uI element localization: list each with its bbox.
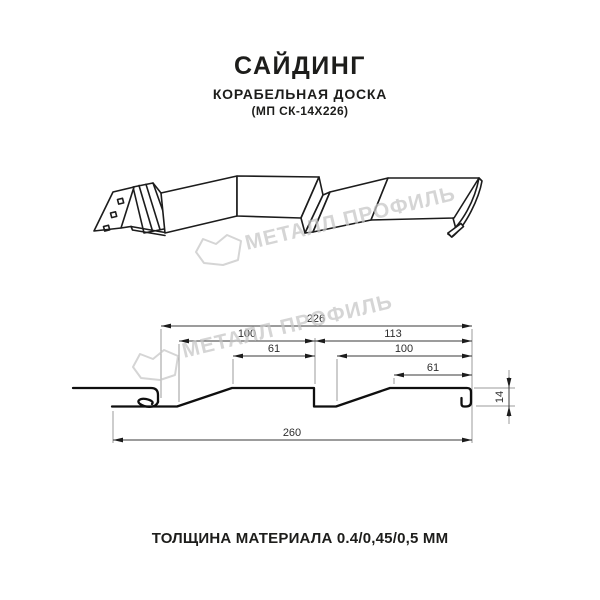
dim-profile-height: 14 xyxy=(494,391,506,403)
metal-profil-logo-icon xyxy=(133,350,178,380)
thickness-note: ТОЛЩИНА МАТЕРИАЛА 0.4/0,45/0,5 ММ xyxy=(0,530,600,547)
cross-section-drawing xyxy=(73,388,471,407)
dim-total-width: 260 xyxy=(283,427,301,439)
watermark-lower: МЕТАЛЛ ПРОФИЛЬ xyxy=(133,290,395,380)
technical-drawing-canvas: 226 100 113 61 100 61 260 14 МЕТАЛЛ ПРОФ… xyxy=(0,0,600,600)
dimension-lines xyxy=(113,326,509,440)
extension-lines xyxy=(113,329,515,443)
dim-right-panel-width: 100 xyxy=(395,343,413,355)
dim-left-panel-flat: 61 xyxy=(268,343,280,355)
dim-right-panel-flat: 61 xyxy=(427,362,439,374)
metal-profil-logo-icon xyxy=(196,235,241,265)
panel-profile xyxy=(112,388,471,407)
dim-right-section-width: 113 xyxy=(384,328,402,340)
catalog-drawing-page: САЙДИНГ КОРАБЕЛЬНАЯ ДОСКА (МП СК-14Х226) xyxy=(0,0,600,600)
